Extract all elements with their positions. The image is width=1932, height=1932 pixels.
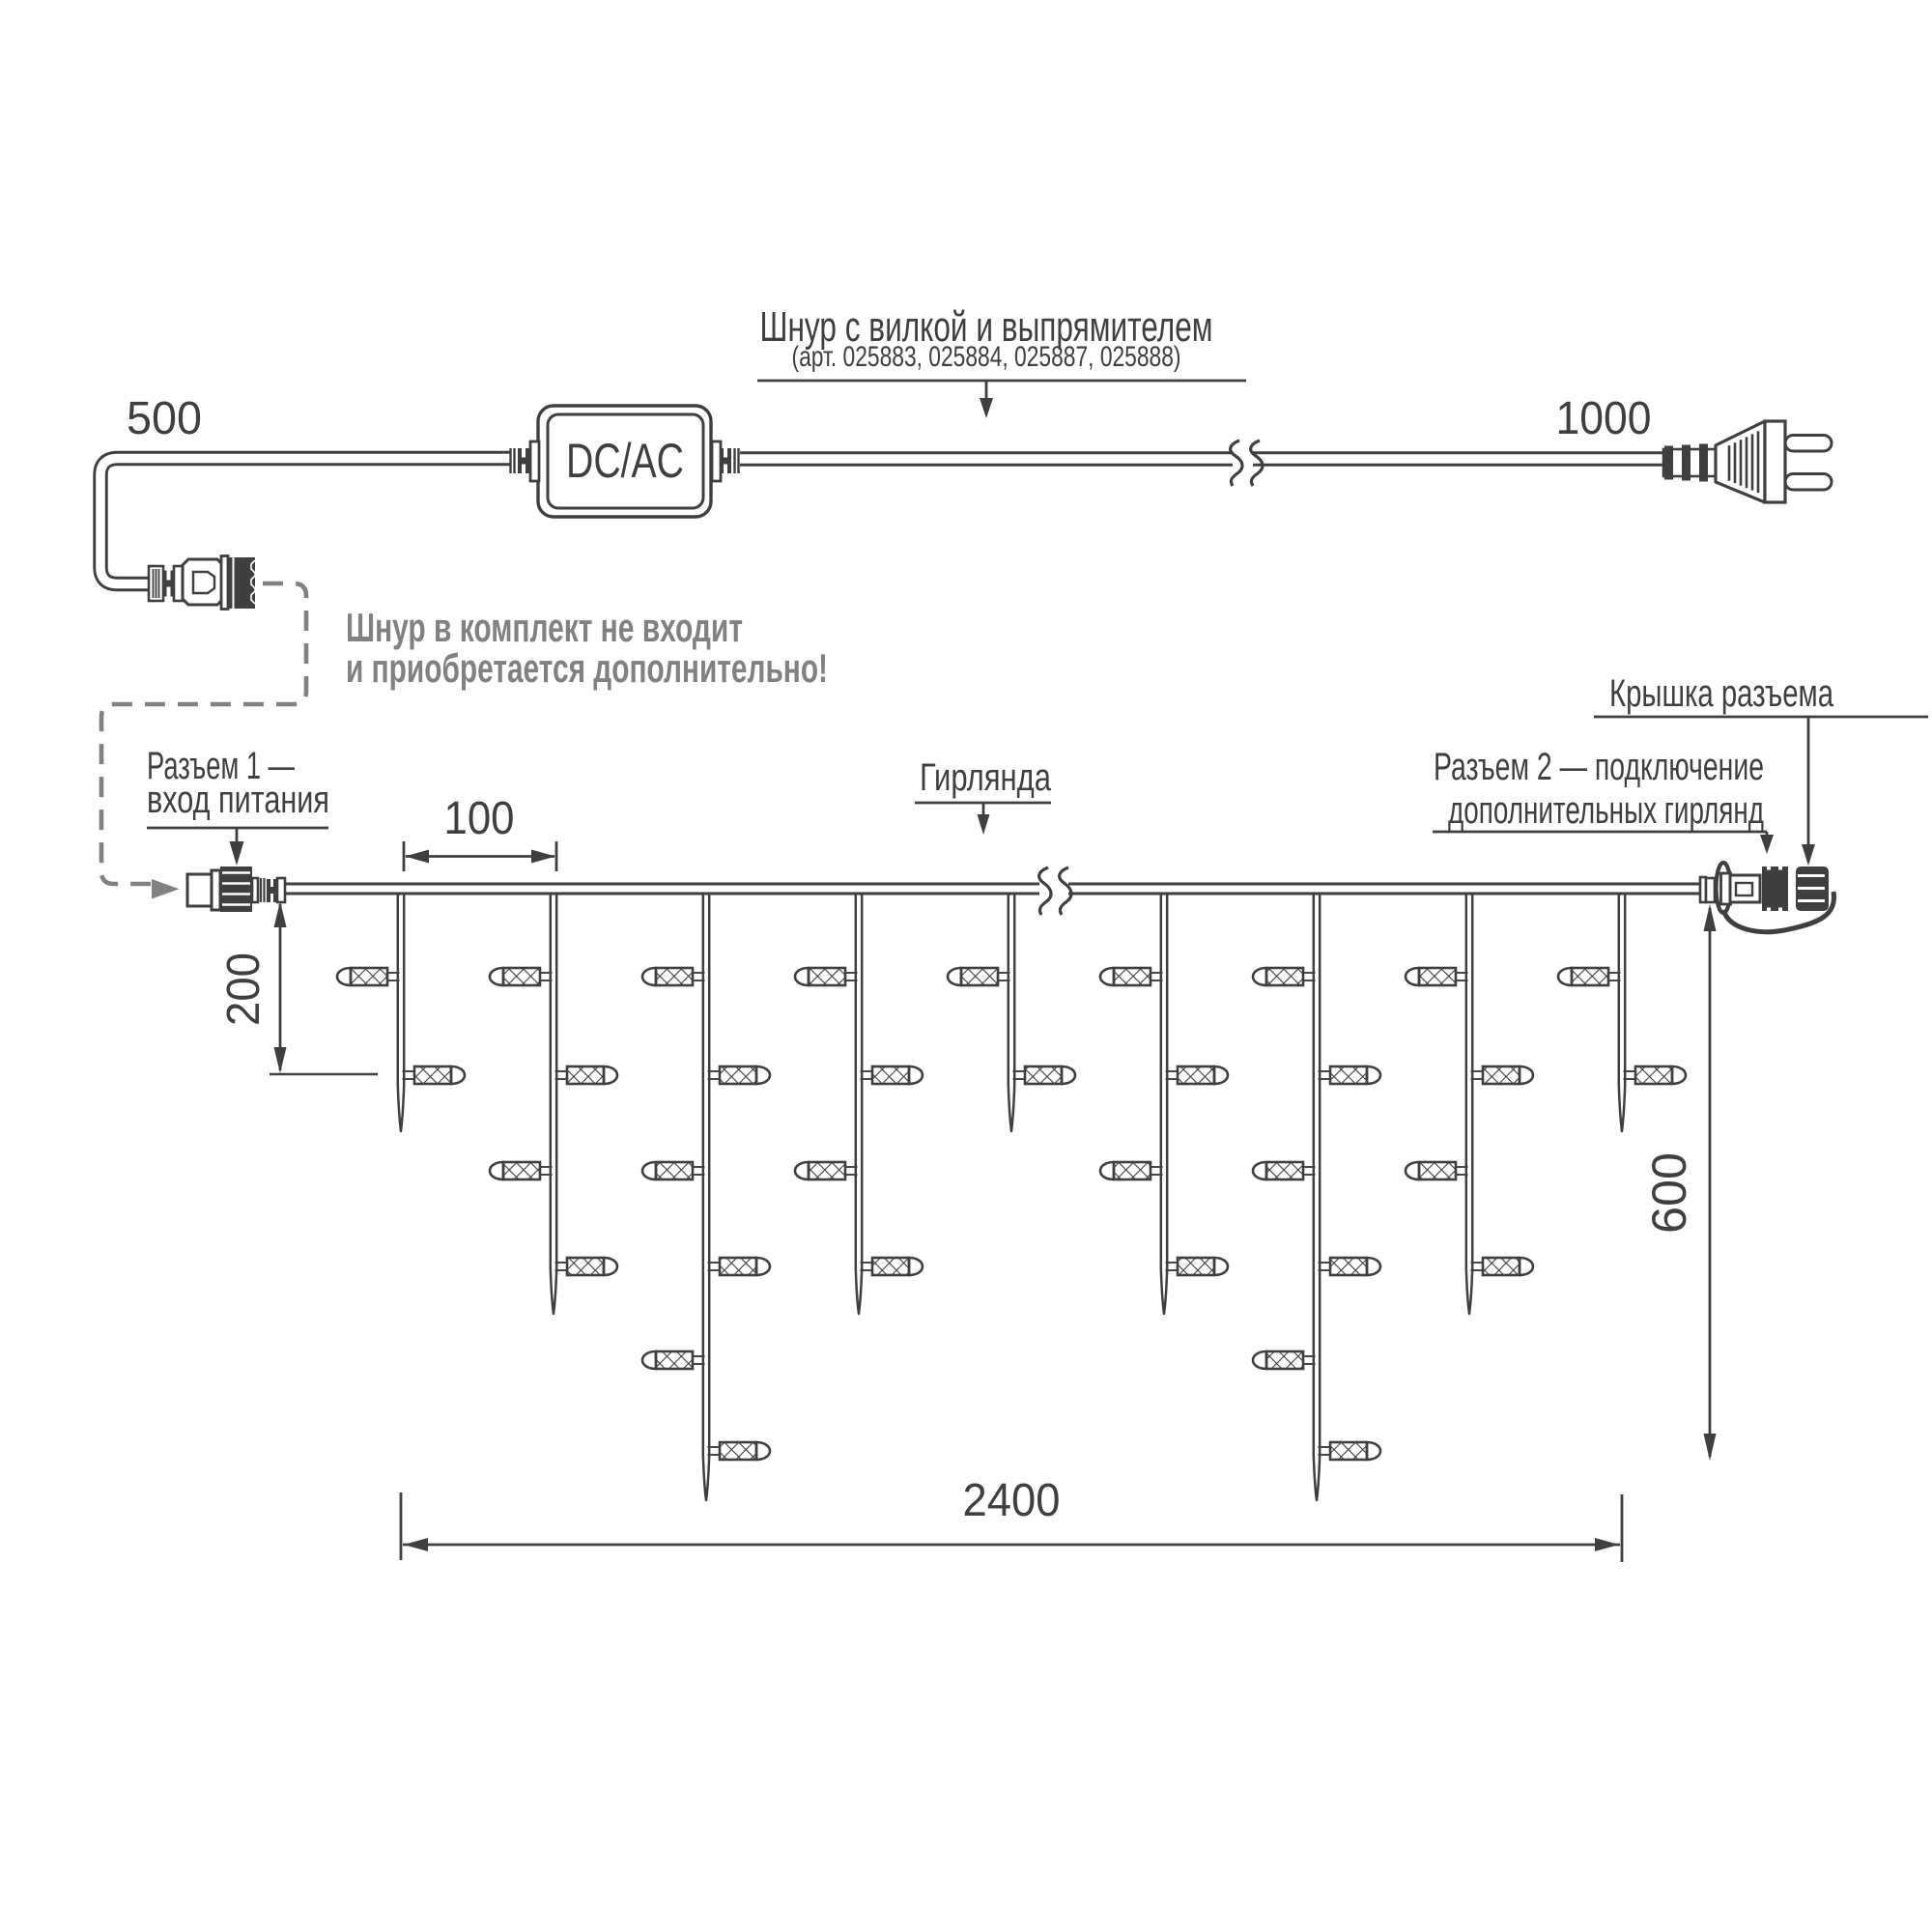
- svg-text:DC/AC: DC/AC: [566, 434, 684, 488]
- svg-text:Гирлянда: Гирлянда: [920, 756, 1052, 799]
- svg-text:вход питания: вход питания: [147, 779, 329, 821]
- svg-text:1000: 1000: [1556, 393, 1652, 444]
- svg-text:дополнительных гирлянд: дополнительных гирлянд: [1448, 789, 1764, 832]
- svg-text:Крышка разъема: Крышка разъема: [1609, 672, 1834, 715]
- svg-text:200: 200: [218, 952, 270, 1026]
- svg-text:Шнур в комплект не входит: Шнур в комплект не входит: [346, 605, 743, 650]
- svg-text:и приобретается дополнительно!: и приобретается дополнительно!: [346, 645, 828, 691]
- svg-text:600: 600: [1642, 1152, 1696, 1234]
- svg-text:2400: 2400: [963, 1475, 1061, 1526]
- svg-text:(арт. 025883, 025884, 025887,: (арт. 025883, 025884, 025887, 025888): [792, 341, 1181, 373]
- svg-text:500: 500: [127, 393, 202, 444]
- svg-text:Разъем 2 — подключение: Разъем 2 — подключение: [1434, 746, 1764, 788]
- svg-text:100: 100: [444, 793, 515, 844]
